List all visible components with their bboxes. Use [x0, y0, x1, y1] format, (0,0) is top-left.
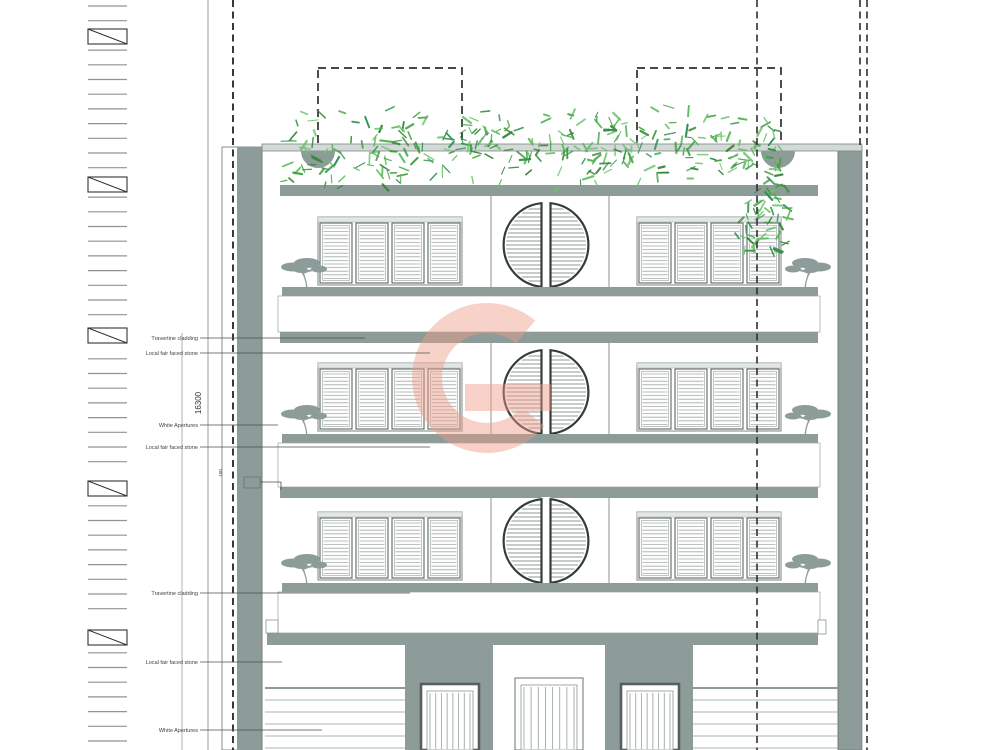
tree-canopy	[785, 413, 801, 420]
foliage-leaf	[775, 130, 781, 131]
watermark-g-bar	[465, 384, 551, 411]
recessed-band	[278, 443, 820, 487]
foliage-leaf	[561, 137, 564, 144]
foliage-leaf	[577, 119, 585, 125]
foliage-leaf	[683, 148, 684, 155]
foliage-leaf	[503, 132, 511, 137]
foliage-leaf	[758, 209, 759, 218]
foliage-leaf	[392, 127, 398, 128]
foliage-leaf	[470, 117, 478, 121]
foliage-leaf	[757, 128, 761, 136]
foliage-leaf	[653, 131, 656, 139]
scale-group	[88, 6, 127, 741]
foliage-leaf	[691, 168, 697, 169]
tree-canopy	[294, 414, 308, 420]
foliage-leaf	[622, 123, 628, 124]
foliage-leaf	[481, 111, 490, 112]
right-pier	[838, 147, 862, 750]
tree-canopy	[294, 563, 308, 569]
foliage-leaf	[438, 137, 443, 138]
foliage-leaf	[296, 120, 298, 126]
window-head-rail	[318, 217, 462, 222]
foliage-leaf	[406, 124, 413, 128]
material-label-text: Travertine cladding	[151, 591, 198, 597]
foliage-leaf	[739, 140, 740, 145]
foliage-leaf	[666, 124, 669, 128]
foliage-leaf	[496, 129, 501, 132]
floor-spandrel-band	[280, 487, 818, 498]
tree-canopy	[785, 562, 801, 569]
window-head-rail	[637, 363, 781, 368]
material-label-text: Travertine cladding	[151, 336, 198, 342]
elevation-sheet: Travertine claddingLocal fair faced ston…	[0, 0, 1000, 750]
foliage-leaf	[541, 118, 550, 122]
entrance-door-leaf	[627, 691, 673, 750]
entrance-door-leaf	[427, 691, 473, 750]
window-head-rail	[637, 512, 781, 517]
foliage-leaf	[514, 128, 523, 131]
foliage-leaf	[704, 114, 708, 121]
foliage-leaf	[590, 148, 598, 149]
beam-end-step	[818, 620, 826, 634]
foliage-leaf	[352, 122, 359, 123]
entrance-door-leaf	[521, 685, 577, 750]
foliage-leaf	[768, 126, 774, 131]
material-label-text: Local fair faced stone	[146, 351, 198, 357]
foliage-leaf	[641, 131, 648, 135]
foliage-leaf	[708, 115, 716, 116]
foliage-leaf	[664, 105, 674, 108]
foliage-leaf	[689, 128, 695, 130]
foliage-leaf	[731, 123, 739, 124]
material-label-text: White Apertures	[159, 423, 198, 429]
round-window-gap	[542, 497, 551, 585]
foliage-leaf	[339, 111, 345, 113]
foliage-leaf	[727, 132, 730, 140]
foliage-leaf	[386, 107, 394, 111]
recessed-band	[278, 296, 820, 332]
foliage-leaf	[686, 125, 688, 136]
foliage-leaf	[544, 114, 549, 116]
foliage-leaf	[331, 175, 332, 183]
elevation-drawing: Travertine claddingLocal fair faced ston…	[0, 0, 1000, 750]
tree-canopy	[804, 563, 818, 569]
foliage-leaf	[613, 113, 620, 120]
foliage-leaf	[392, 140, 402, 141]
foliage-leaf	[608, 131, 617, 134]
balcony-slab-band	[282, 434, 818, 443]
foliage-leaf	[362, 141, 363, 148]
foliage-leaf	[744, 246, 745, 254]
foliage-leaf	[508, 121, 510, 126]
foliage-leaf	[293, 173, 302, 175]
foliage-leaf	[665, 133, 676, 135]
material-label-text: Local fair faced stone	[146, 445, 198, 451]
foliage-leaf	[753, 246, 754, 252]
foliage-leaf	[380, 140, 391, 141]
balcony-slab-band	[282, 583, 818, 592]
tree-canopy	[785, 266, 801, 273]
foliage-leaf	[775, 174, 782, 175]
material-label-text: Local fair faced stone	[146, 660, 198, 666]
foliage-leaf	[546, 153, 554, 154]
foliage-leaf	[746, 226, 747, 234]
foliage-leaf	[739, 118, 747, 119]
foliage-leaf	[780, 159, 781, 166]
foliage-leaf	[520, 159, 530, 160]
foliage-leaf	[596, 117, 597, 123]
tree-canopy	[804, 414, 818, 420]
foliage-leaf	[289, 132, 296, 140]
foliage-leaf	[462, 125, 471, 126]
foliage-leaf	[688, 106, 689, 116]
tree-canopy	[311, 413, 327, 420]
foliage-leaf	[598, 133, 599, 144]
foliage-leaf	[393, 143, 400, 145]
dimension-text: 150	[218, 469, 223, 477]
balcony-slab-band	[282, 287, 818, 296]
level-marker	[244, 477, 260, 488]
foliage-leaf	[639, 127, 644, 130]
foliage-leaf	[613, 125, 614, 131]
foliage-leaf	[375, 128, 382, 129]
foliage-leaf	[722, 117, 729, 119]
foliage-leaf	[609, 117, 613, 126]
dimension-text: 16300	[194, 391, 203, 414]
floor-spandrel-band	[280, 185, 818, 196]
tree-canopy	[294, 267, 308, 273]
tree-canopy	[311, 266, 327, 273]
foliage-leaf	[499, 115, 500, 120]
foliage-leaf	[685, 137, 691, 138]
foliage-leaf	[655, 153, 660, 154]
foliage-leaf	[773, 132, 775, 139]
foliage-leaf	[491, 135, 492, 141]
recessed-band	[278, 592, 820, 633]
foliage-leaf	[651, 107, 658, 111]
foliage-leaf	[314, 130, 316, 135]
foliage-leaf	[424, 160, 433, 161]
beam-end-step	[266, 620, 278, 633]
foliage-leaf	[509, 167, 519, 168]
foliage-leaf	[626, 126, 627, 136]
foliage-leaf	[642, 135, 647, 138]
foliage-leaf	[699, 137, 706, 138]
tree-canopy	[311, 562, 327, 569]
foliage-leaf	[469, 127, 472, 133]
foliage-leaf	[657, 173, 658, 182]
foliage-leaf	[764, 134, 767, 142]
round-window-gap	[542, 201, 551, 289]
foliage-leaf	[549, 135, 550, 142]
foliage-leaf	[365, 117, 369, 127]
foliage-leaf	[767, 157, 773, 158]
floor-spandrel-band	[280, 332, 818, 343]
foliage-leaf	[777, 214, 778, 221]
window-head-rail	[318, 512, 462, 517]
foliage-leaf	[408, 132, 411, 139]
foliage-leaf	[659, 166, 665, 167]
foliage-leaf	[681, 136, 682, 144]
material-label-text: White Apertures	[159, 728, 198, 734]
foliage-leaf	[770, 169, 779, 170]
roof-structure-outline	[637, 68, 781, 150]
foliage-leaf	[308, 120, 318, 121]
foliage-leaf	[696, 163, 703, 164]
ground-beam	[267, 633, 818, 645]
tree-canopy	[804, 267, 818, 273]
foliage-leaf	[764, 118, 767, 122]
foliage-leaf	[562, 135, 572, 138]
foliage-leaf	[630, 139, 635, 143]
foliage-leaf	[483, 132, 487, 138]
foliage-leaf	[676, 143, 677, 153]
foliage-leaf	[301, 112, 308, 115]
foliage-leaf	[413, 112, 420, 117]
grid1-group	[182, 0, 208, 750]
left-pier	[237, 147, 262, 750]
foliage-leaf	[558, 131, 563, 135]
